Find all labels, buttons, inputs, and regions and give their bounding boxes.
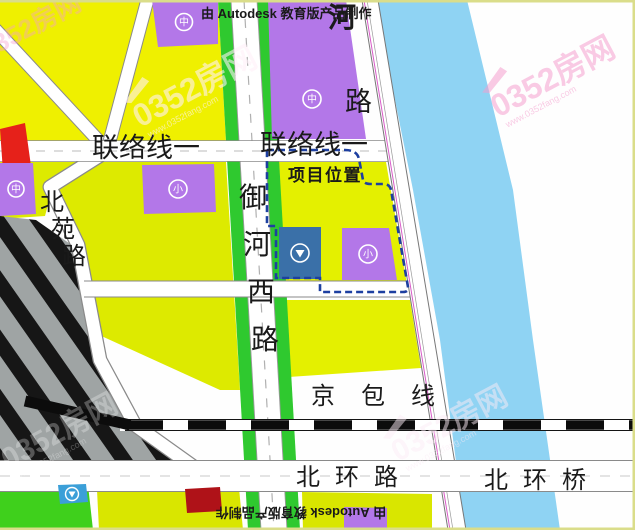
road-label-riverside-2: 路 — [345, 87, 372, 117]
bridge-label-beihuan: 北环桥 — [484, 467, 601, 494]
road-label-lianluo-left: 联络线一 — [92, 133, 200, 163]
railway-label-jingbao: 京包线 — [311, 383, 461, 410]
autodesk-banner-bottom-group: 由 Autodesk 教育版产品制作 — [216, 505, 386, 520]
icon-char: 中 — [179, 16, 189, 29]
road-label-beiyuan-1: 北 — [40, 189, 64, 216]
frame-top — [0, 0, 635, 3]
icon-char: 中 — [11, 183, 21, 196]
parcel-southeast-mid — [272, 300, 421, 378]
road-label-beihuan: 北环路 — [296, 464, 413, 491]
road-label-yuhexi-4: 路 — [251, 324, 279, 356]
road-label-riverside-1: 河 — [328, 2, 356, 34]
autodesk-banner-bottom: 由 Autodesk 教育版产品制作 — [216, 505, 386, 520]
planning-map-screenshot: 中 中 中 小 小 由 Autodesk 教育版产品制作 联络线一 — [0, 0, 635, 530]
project-location-label: 项目位置 — [288, 165, 362, 185]
road-label-yuhexi-1: 御 — [239, 182, 267, 214]
icon-char: 小 — [173, 184, 183, 196]
road-label-yuhexi-2: 河 — [243, 230, 271, 261]
icon-char: 中 — [307, 93, 317, 106]
road-label-beiyuan-3: 路 — [62, 243, 86, 270]
planning-map: 中 中 中 小 小 由 Autodesk 教育版产品制作 联络线一 — [0, 0, 635, 530]
road-label-yuhexi-3: 西 — [247, 277, 275, 308]
road-label-lianluo-right: 联络线一 — [260, 130, 368, 160]
icon-char: 小 — [363, 249, 373, 261]
road-label-beiyuan-2: 苑 — [51, 216, 75, 243]
